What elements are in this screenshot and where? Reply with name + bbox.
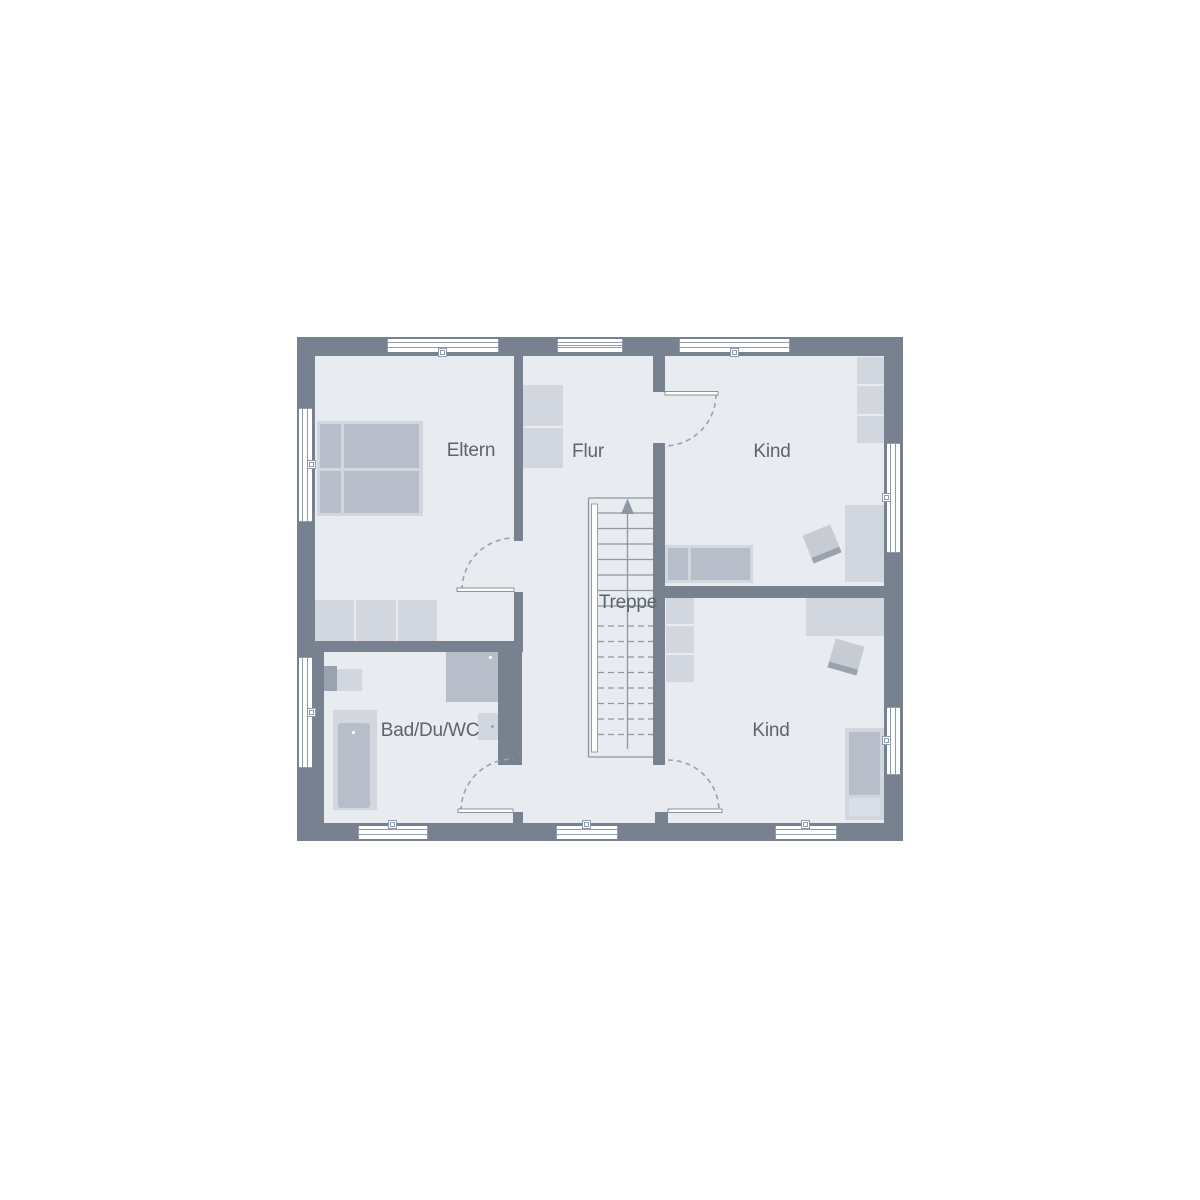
window-handle-icon bbox=[307, 708, 316, 717]
wall-eltern-bad bbox=[315, 641, 523, 652]
mattress-icon bbox=[344, 424, 419, 468]
desk-icon bbox=[845, 505, 884, 582]
window-handle-icon bbox=[307, 460, 316, 469]
cabinet-icon bbox=[523, 385, 563, 468]
pillow-icon bbox=[849, 798, 880, 816]
window-icon bbox=[775, 826, 837, 839]
wall-flur-kind-stub bbox=[653, 356, 665, 392]
sink-icon bbox=[337, 669, 362, 691]
mattress-icon bbox=[849, 732, 880, 795]
window-icon bbox=[887, 443, 900, 553]
room-label-treppe: Treppe bbox=[599, 592, 657, 614]
bathtub-zone bbox=[333, 710, 377, 810]
room-label-eltern: Eltern bbox=[447, 440, 495, 462]
wardrobe-icon bbox=[857, 357, 884, 443]
window-icon bbox=[679, 339, 790, 352]
window-icon bbox=[299, 657, 312, 768]
pillow-icon bbox=[320, 424, 341, 468]
room-label-flur: Flur bbox=[572, 441, 604, 463]
window-handle-icon bbox=[438, 348, 447, 357]
wc-icon bbox=[478, 713, 498, 740]
single-bed bbox=[845, 728, 884, 820]
wall-bad-corridor bbox=[498, 645, 522, 765]
window-handle-icon bbox=[882, 736, 891, 745]
pillow-icon bbox=[320, 471, 341, 513]
window-icon bbox=[557, 339, 623, 352]
window-icon bbox=[299, 408, 312, 522]
bad-installation-wall bbox=[315, 651, 324, 823]
wardrobe-icon bbox=[666, 597, 694, 682]
double-bed bbox=[317, 421, 423, 516]
window-icon bbox=[556, 826, 618, 839]
desk-icon bbox=[806, 598, 884, 636]
wall-eltern-flur bbox=[514, 356, 523, 541]
mattress-icon bbox=[691, 548, 750, 580]
window-handle-icon bbox=[582, 820, 591, 829]
window-handle-icon bbox=[388, 820, 397, 829]
window-icon bbox=[358, 826, 428, 839]
sink-counter bbox=[324, 666, 337, 691]
window-handle-icon bbox=[730, 348, 739, 357]
door-jamb-kind bbox=[655, 812, 668, 823]
pillow-icon bbox=[668, 548, 688, 580]
room-label-kind-bottom: Kind bbox=[752, 720, 789, 742]
door-jamb-bad bbox=[513, 812, 523, 823]
page: Eltern Flur Kind Kind Bad/Du/WC Treppe bbox=[0, 0, 1200, 1200]
shower-icon bbox=[446, 651, 498, 702]
wardrobe-icon bbox=[315, 600, 437, 641]
bathtub-icon bbox=[338, 723, 370, 808]
wall-kind-kind bbox=[653, 586, 884, 598]
window-icon bbox=[887, 707, 900, 775]
floor-plan: Eltern Flur Kind Kind Bad/Du/WC Treppe bbox=[297, 337, 903, 841]
room-label-bad: Bad/Du/WC bbox=[381, 720, 480, 742]
room-label-kind-top: Kind bbox=[753, 441, 790, 463]
window-icon bbox=[387, 339, 499, 352]
single-bed bbox=[665, 545, 753, 583]
window-handle-icon bbox=[882, 493, 891, 502]
window-handle-icon bbox=[801, 820, 810, 829]
mattress-icon bbox=[344, 471, 419, 513]
